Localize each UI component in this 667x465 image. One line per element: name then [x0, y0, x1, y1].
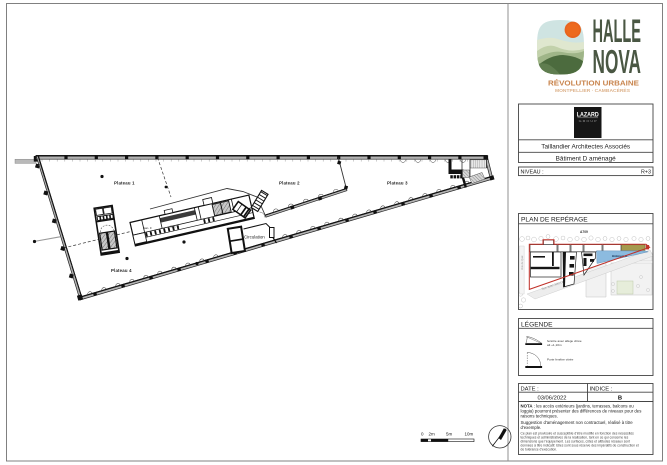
- svg-text:DATE :: DATE :: [521, 387, 540, 393]
- svg-text:RÉVOLUTION URBAINE: RÉVOLUTION URBAINE: [548, 79, 639, 88]
- svg-text:LAZARD: LAZARD: [577, 113, 600, 119]
- svg-text:B: B: [618, 396, 622, 402]
- svg-text:5m: 5m: [446, 432, 453, 437]
- svg-text:A709: A709: [580, 230, 588, 234]
- svg-text:Taillandier Architectes Associ: Taillandier Architectes Associés: [541, 144, 630, 151]
- svg-text:Plateau 2: Plateau 2: [279, 181, 300, 186]
- svg-text:R+3: R+3: [641, 170, 651, 176]
- svg-text:Plateau 4: Plateau 4: [111, 268, 132, 273]
- svg-text:San. H: San. H: [170, 225, 179, 229]
- svg-text:d'exemple.: d'exemple.: [521, 425, 542, 430]
- svg-text:Porte fenêtre vitrée: Porte fenêtre vitrée: [547, 358, 574, 362]
- svg-text:San. F: San. F: [143, 226, 152, 230]
- svg-text:Plateau 3: Plateau 3: [387, 181, 408, 186]
- svg-text:de tolérance d'exécution.: de tolérance d'exécution.: [521, 448, 558, 452]
- svg-text:MONTPELLIER · CAMBACÉRÈS: MONTPELLIER · CAMBACÉRÈS: [555, 88, 630, 93]
- svg-text:alt +1,10m: alt +1,10m: [547, 343, 562, 347]
- svg-text:raisons techniques.: raisons techniques.: [521, 414, 558, 419]
- svg-text:NOVA: NOVA: [593, 43, 642, 80]
- svg-text:03/06/2022: 03/06/2022: [537, 396, 566, 402]
- svg-text:Circulation: Circulation: [244, 235, 265, 240]
- svg-text:Voie de Quai: Voie de Quai: [521, 255, 524, 270]
- svg-text:Bâtiment D aménagé: Bâtiment D aménagé: [556, 155, 616, 162]
- svg-text:PLAN DE REPÉRAGE: PLAN DE REPÉRAGE: [521, 215, 588, 224]
- svg-text:Plateau 1: Plateau 1: [114, 181, 135, 186]
- svg-text:0: 0: [421, 432, 424, 437]
- svg-text:NIVEAU :: NIVEAU :: [521, 170, 544, 176]
- svg-text:G R O U P: G R O U P: [579, 119, 597, 123]
- svg-text:LÉGENDE: LÉGENDE: [521, 319, 553, 328]
- svg-text:2m: 2m: [429, 432, 436, 437]
- svg-text:INDICE :: INDICE :: [590, 387, 613, 393]
- svg-text:10m: 10m: [465, 432, 474, 437]
